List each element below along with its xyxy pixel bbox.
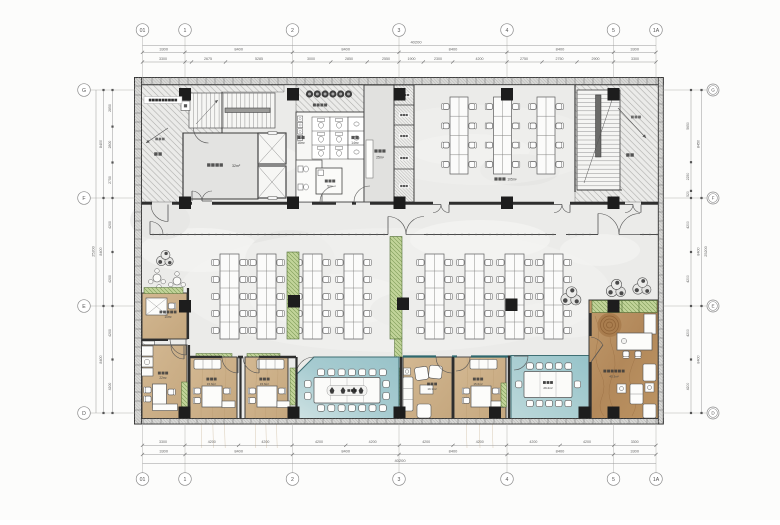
svg-text:5285: 5285: [255, 57, 263, 61]
svg-text:25m²: 25m²: [376, 156, 385, 160]
svg-text:4200: 4200: [108, 221, 112, 229]
svg-text:4200: 4200: [686, 275, 690, 283]
svg-text:2800: 2800: [108, 141, 112, 149]
svg-text:4200: 4200: [208, 440, 216, 444]
svg-text:4200: 4200: [476, 440, 484, 444]
svg-text:29.2m²: 29.2m²: [543, 386, 552, 390]
svg-text:2300: 2300: [434, 57, 442, 61]
svg-text:4200: 4200: [686, 383, 690, 391]
svg-text:01: 01: [140, 477, 146, 483]
svg-text:15.6m²: 15.6m²: [473, 382, 482, 386]
svg-text:2850: 2850: [345, 57, 353, 61]
svg-text:3: 3: [398, 28, 401, 34]
svg-text:F: F: [712, 196, 715, 201]
svg-text:15.6m²: 15.6m²: [260, 382, 269, 386]
svg-text:D: D: [82, 411, 86, 417]
svg-text:4200: 4200: [583, 440, 591, 444]
svg-text:1: 1: [184, 28, 187, 34]
svg-text:4200: 4200: [261, 440, 269, 444]
svg-text:8400: 8400: [99, 355, 103, 363]
svg-text:3300: 3300: [159, 46, 168, 51]
svg-text:01: 01: [140, 28, 146, 34]
svg-text:5: 5: [612, 28, 615, 34]
svg-text:15.6m²: 15.6m²: [207, 382, 216, 386]
svg-text:25200: 25200: [92, 246, 96, 257]
svg-text:22m²: 22m²: [159, 376, 166, 380]
svg-text:F: F: [82, 196, 85, 202]
svg-text:8400: 8400: [449, 449, 458, 454]
svg-text:2850: 2850: [108, 104, 112, 112]
svg-text:2: 2: [291, 28, 294, 34]
svg-text:8400: 8400: [99, 247, 103, 255]
svg-text:3300: 3300: [159, 57, 167, 61]
svg-text:G: G: [711, 88, 715, 93]
svg-text:4: 4: [506, 28, 509, 34]
svg-text:4200: 4200: [315, 440, 323, 444]
svg-text:19.3m²: 19.3m²: [427, 387, 436, 391]
svg-text:5: 5: [612, 477, 615, 483]
svg-text:2: 2: [291, 477, 294, 483]
svg-text:4200: 4200: [422, 440, 430, 444]
svg-text:4200: 4200: [108, 329, 112, 337]
svg-text:4200: 4200: [686, 221, 690, 229]
svg-text:2900: 2900: [592, 57, 600, 61]
svg-text:8400: 8400: [234, 46, 243, 51]
svg-text:2750: 2750: [556, 57, 564, 61]
svg-text:8400: 8400: [341, 46, 350, 51]
svg-text:8400: 8400: [697, 247, 701, 255]
svg-text:1A: 1A: [653, 477, 660, 483]
svg-text:40200: 40200: [394, 458, 406, 463]
svg-text:3300: 3300: [159, 449, 168, 454]
svg-text:1900: 1900: [408, 57, 416, 61]
svg-text:8400: 8400: [99, 140, 103, 148]
svg-text:25200: 25200: [704, 246, 708, 257]
svg-text:4200: 4200: [476, 57, 484, 61]
svg-text:3000: 3000: [307, 57, 315, 61]
svg-text:8400: 8400: [697, 355, 701, 363]
svg-text:32m²: 32m²: [232, 164, 241, 168]
svg-text:4200: 4200: [369, 440, 377, 444]
svg-text:8400: 8400: [556, 46, 565, 51]
svg-text:40200: 40200: [410, 40, 422, 45]
svg-text:3300: 3300: [631, 57, 639, 61]
svg-text:8400: 8400: [341, 449, 350, 454]
svg-text:2250: 2250: [686, 173, 690, 181]
svg-text:G: G: [82, 88, 86, 94]
svg-text:2550: 2550: [382, 57, 390, 61]
svg-text:3300: 3300: [630, 46, 639, 51]
svg-text:4200: 4200: [686, 329, 690, 337]
svg-text:1A: 1A: [653, 28, 660, 34]
svg-text:E: E: [82, 304, 86, 310]
svg-text:3: 3: [398, 477, 401, 483]
svg-text:8400: 8400: [556, 449, 565, 454]
svg-text:5650: 5650: [686, 122, 690, 130]
svg-text:2675: 2675: [204, 57, 212, 61]
svg-text:520: 520: [686, 191, 690, 197]
svg-text:4200: 4200: [108, 383, 112, 391]
svg-text:8400: 8400: [449, 46, 458, 51]
svg-text:16m²: 16m²: [297, 141, 305, 145]
svg-text:3300: 3300: [630, 449, 639, 454]
svg-text:4200: 4200: [529, 440, 537, 444]
svg-text:105m²: 105m²: [507, 178, 517, 182]
svg-text:8450: 8450: [697, 140, 701, 148]
svg-text:2750: 2750: [108, 176, 112, 184]
svg-text:2750: 2750: [520, 57, 528, 61]
svg-text:14m²: 14m²: [351, 141, 359, 145]
svg-text:10m²: 10m²: [164, 315, 171, 319]
svg-text:4200: 4200: [108, 275, 112, 283]
svg-text:4: 4: [506, 477, 509, 483]
svg-text:1: 1: [184, 477, 187, 483]
svg-text:3300: 3300: [159, 440, 167, 444]
svg-text:E: E: [711, 304, 714, 309]
svg-text:8400: 8400: [234, 449, 243, 454]
svg-text:3300: 3300: [631, 440, 639, 444]
svg-text:45.3m²: 45.3m²: [609, 375, 618, 379]
